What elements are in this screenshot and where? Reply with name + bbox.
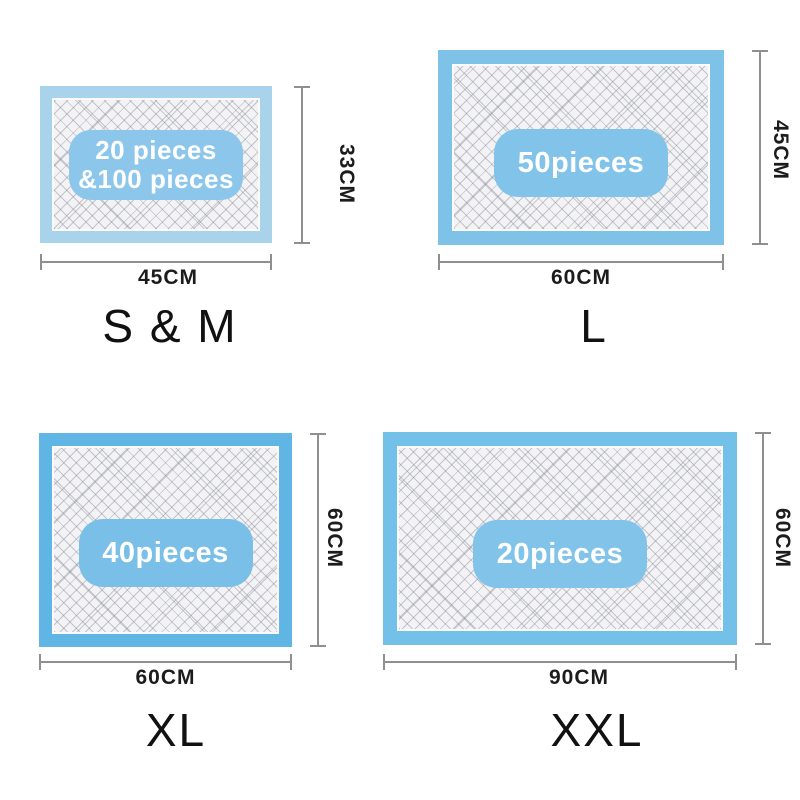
dimension-cap — [39, 654, 41, 670]
dimension-line — [39, 661, 292, 663]
panel-xxl: 20pieces 60CM 90CM XXL — [0, 0, 800, 800]
height-dimension-line — [752, 50, 768, 245]
height-dimension-line — [755, 432, 771, 645]
badge-line-2: &100 pieces — [78, 165, 234, 194]
dimension-cap — [310, 433, 326, 435]
dimension-line — [438, 261, 724, 263]
pad-crosshatch-surface — [397, 446, 723, 631]
dimension-cap — [290, 654, 292, 670]
size-name: XL — [46, 704, 306, 756]
dimension-cap — [438, 254, 440, 270]
dimension-cap — [755, 432, 771, 434]
piece-count-badge: 50pieces — [494, 129, 668, 197]
pad-crosshatch-surface — [52, 446, 279, 634]
dimension-cap — [722, 254, 724, 270]
piece-count-badge: 40pieces — [79, 519, 253, 587]
pad-illustration-xxl: 20pieces — [383, 432, 737, 645]
dimension-line — [301, 86, 303, 244]
height-dimension-line — [310, 433, 326, 647]
dimension-cap — [735, 654, 737, 670]
width-dimension-line — [40, 254, 272, 270]
dimension-line — [40, 261, 272, 263]
size-name: L — [464, 300, 724, 352]
dimension-line — [317, 433, 319, 647]
dimension-cap — [752, 50, 768, 52]
dimension-cap — [40, 254, 42, 270]
pad-illustration-xl: 40pieces — [39, 433, 292, 647]
width-dimension-line — [383, 654, 737, 670]
dimension-cap — [752, 243, 768, 245]
size-name: XXL — [467, 704, 727, 756]
panel-l: 50pieces 45CM 60CM L — [0, 0, 800, 800]
width-label: 60CM — [39, 666, 292, 690]
badge-line-1: 20 pieces — [95, 136, 217, 165]
pad-illustration-s-m: 20 pieces &100 pieces — [40, 86, 272, 243]
dimension-cap — [755, 643, 771, 645]
pad-crosshatch-surface — [452, 64, 710, 231]
width-label: 90CM — [402, 666, 756, 690]
size-name: S & M — [40, 300, 300, 352]
height-label: 60CM — [770, 508, 794, 568]
badge-line-1: 40pieces — [102, 537, 229, 569]
piece-count-badge: 20 pieces &100 pieces — [69, 130, 243, 200]
dimension-cap — [270, 254, 272, 270]
width-label: 45CM — [52, 266, 284, 290]
piece-count-badge: 20pieces — [473, 520, 647, 588]
pad-illustration-l: 50pieces — [438, 50, 724, 245]
dimension-line — [759, 50, 761, 245]
height-dimension-line — [294, 86, 310, 244]
dimension-line — [383, 661, 737, 663]
width-label: 60CM — [438, 266, 724, 290]
width-dimension-line — [438, 254, 724, 270]
size-chart: 20 pieces &100 pieces 33CM 45CM S & M 50… — [0, 0, 800, 800]
dimension-cap — [294, 242, 310, 244]
dimension-cap — [383, 654, 385, 670]
height-label: 45CM — [768, 120, 792, 180]
width-dimension-line — [39, 654, 292, 670]
pad-crosshatch-surface — [52, 98, 260, 231]
dimension-line — [762, 432, 764, 645]
panel-s-m: 20 pieces &100 pieces 33CM 45CM S & M — [0, 0, 800, 800]
height-label: 60CM — [322, 508, 346, 568]
height-label: 33CM — [334, 144, 358, 204]
panel-xl: 40pieces 60CM 60CM XL — [0, 0, 800, 800]
dimension-cap — [310, 645, 326, 647]
badge-line-1: 20pieces — [497, 538, 624, 570]
badge-line-1: 50pieces — [518, 147, 645, 179]
dimension-cap — [294, 86, 310, 88]
